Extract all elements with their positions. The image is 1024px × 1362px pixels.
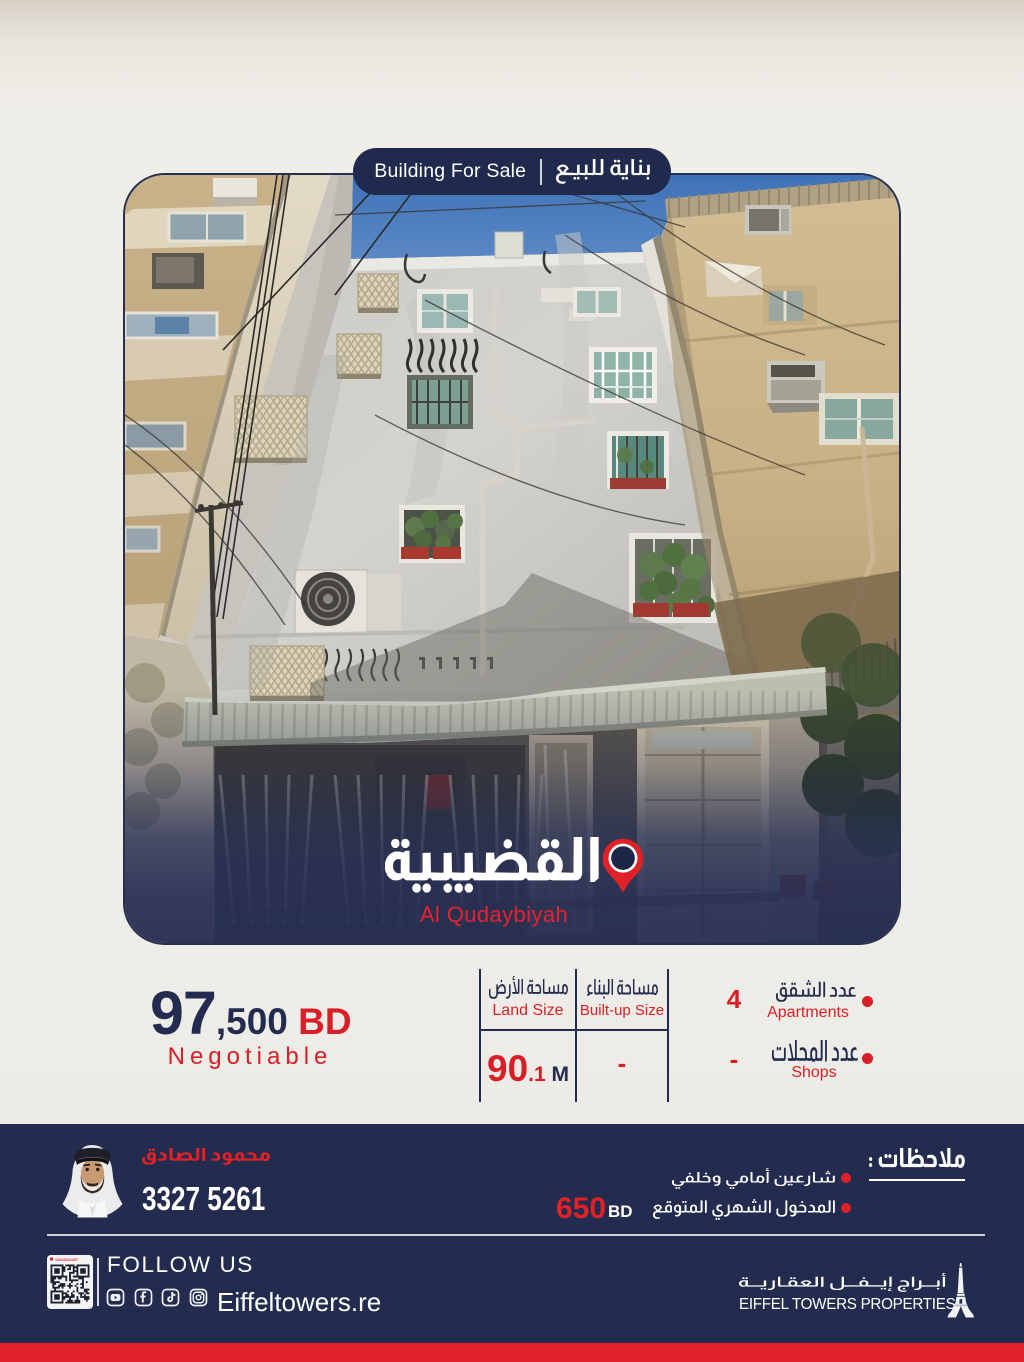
svg-text:#202403/1257: #202403/1257	[55, 1258, 78, 1262]
